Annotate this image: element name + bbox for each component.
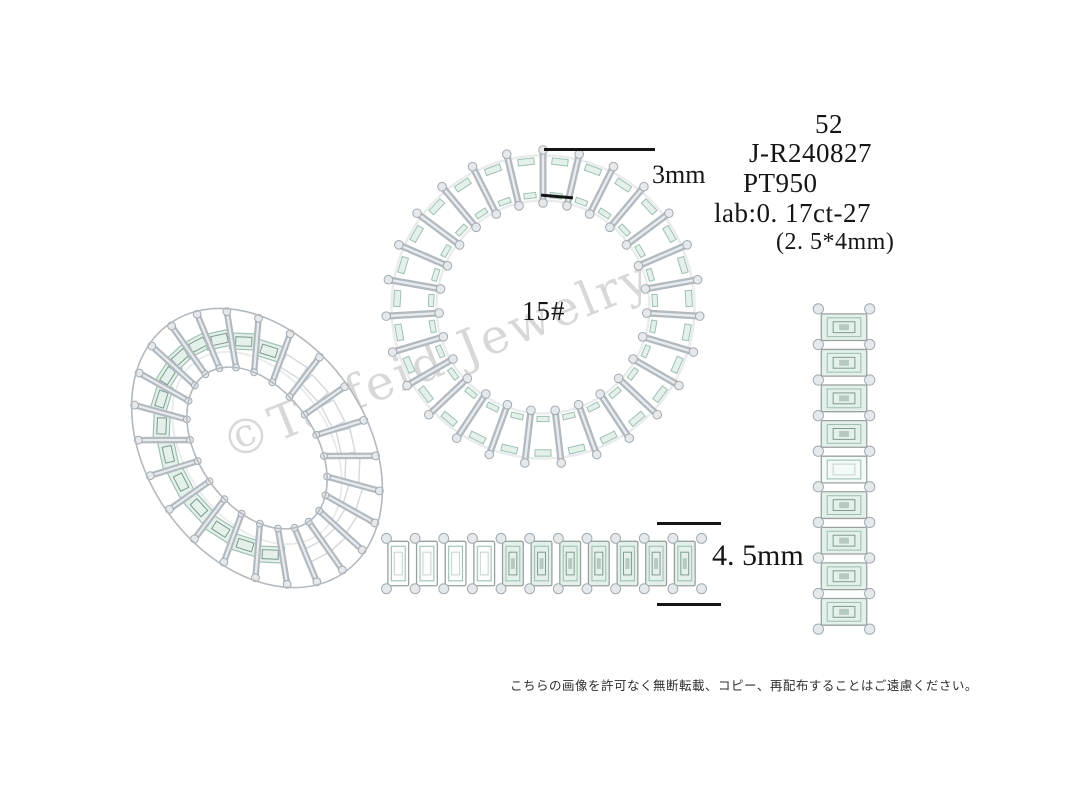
dim-4-5mm-label: 4. 5mm — [712, 540, 804, 572]
footer-copyright-notice: こちらの画像を許可なく無断転載、コピー、再配布することはご遠慮ください。 — [510, 679, 978, 692]
dim-3mm-label: 3mm — [652, 161, 705, 188]
spec-ring-size: 52 — [815, 110, 843, 138]
spec-stone-info: lab:0. 17ct-27 — [714, 199, 871, 227]
spec-model-number: J-R240827 — [749, 139, 872, 167]
dim-4-5mm-top-line — [657, 522, 721, 525]
dim-4-5mm-bottom-line — [657, 603, 721, 606]
spec-stone-dimensions: (2. 5*4mm) — [776, 230, 894, 255]
jewelry-cad-sheet: ©Taifeid Jewelry 3mm 15# 4. 5mm 52 J-R24… — [0, 0, 1080, 810]
ring-side-view — [381, 526, 707, 610]
spec-metal: PT950 — [743, 169, 818, 197]
ring-perspective-view — [118, 283, 396, 613]
dim-3mm-outer-line — [544, 148, 655, 151]
ring-front-view — [804, 301, 888, 641]
ring-size-label: 15# — [522, 297, 566, 325]
